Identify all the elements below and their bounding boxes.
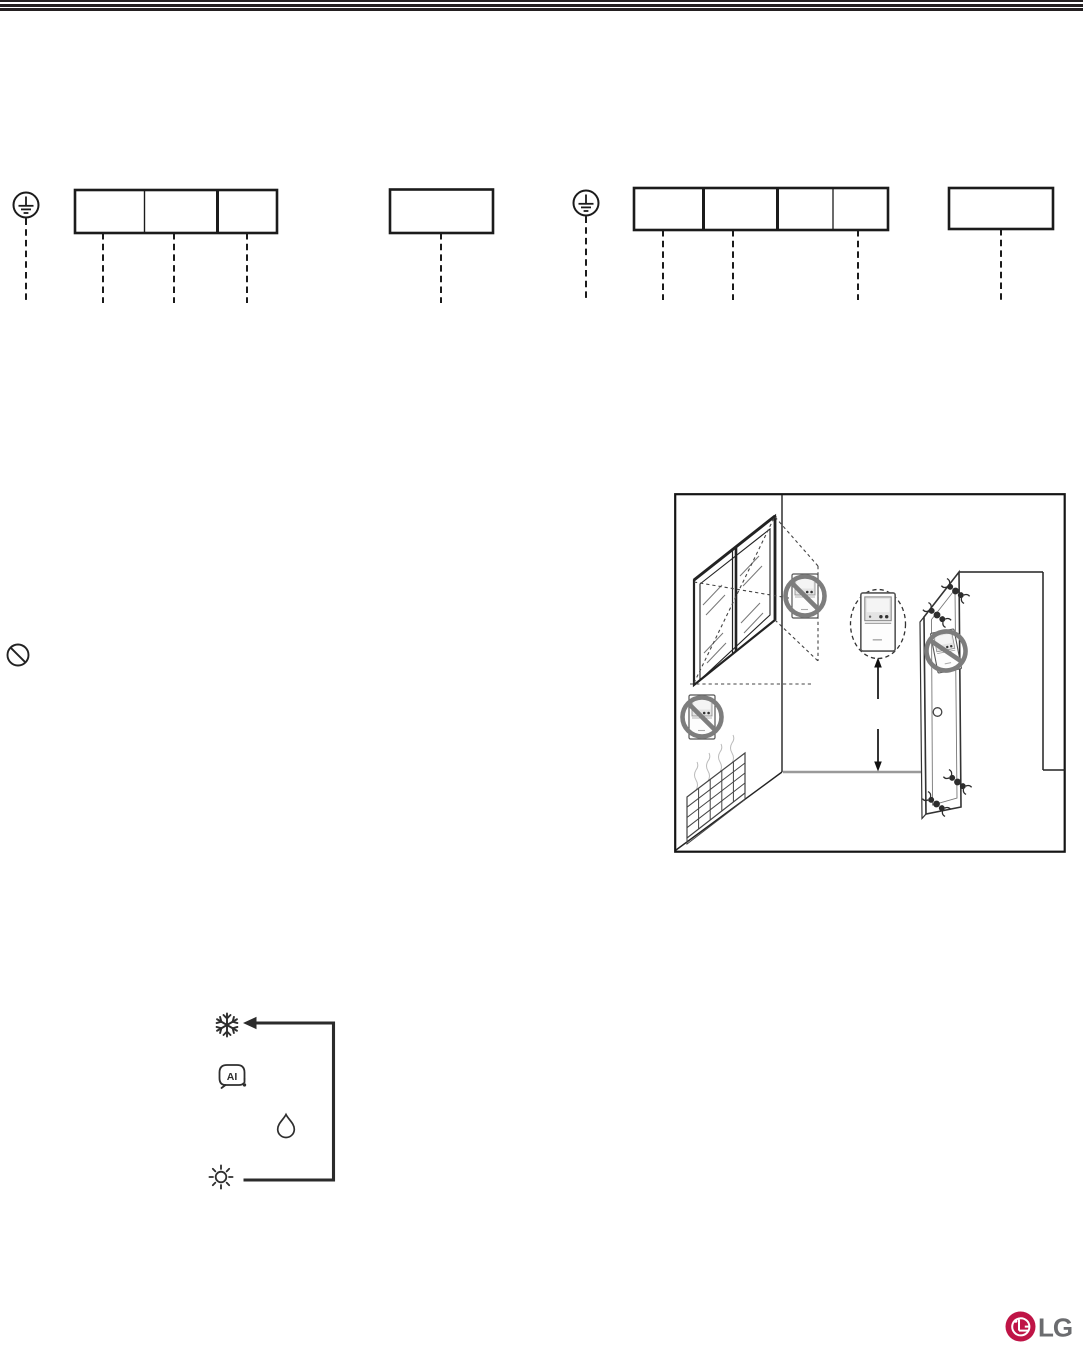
- protective-earth-icon: [14, 193, 39, 218]
- recommended-remote-location: [851, 590, 906, 659]
- operation-mode-cycle-diagram: AI: [205, 1008, 345, 1193]
- terminal-dashed-leads: [103, 233, 247, 303]
- remote-controller: [861, 593, 895, 651]
- cooling-snowflake-icon: [215, 1014, 238, 1037]
- terminal-block-4cell: [634, 188, 888, 230]
- prohibition-circle-slash-icon: [4, 641, 32, 669]
- mode-cycle-arrow: [243, 1017, 334, 1180]
- single-terminal-block: [949, 188, 1053, 229]
- wiring-leads-diagram: [0, 175, 1083, 315]
- heating-sun-icon: [209, 1165, 232, 1188]
- rule-stripe: [0, 8, 1083, 11]
- protective-earth-icon: [574, 191, 599, 216]
- installation-location-illustration: [674, 493, 1066, 853]
- ai-mode-icon: AI: [220, 1065, 247, 1088]
- lg-emblem-icon: [1006, 1312, 1036, 1342]
- door-knob-icon: [933, 708, 942, 717]
- lg-logo-text: LG: [1038, 1313, 1072, 1343]
- ai-mode-label: AI: [227, 1071, 238, 1083]
- lg-logo: LG: [1004, 1309, 1083, 1345]
- terminal-block-3cell: [75, 190, 277, 233]
- page-top-rule: [0, 0, 1083, 11]
- manual-page: AI LG: [0, 0, 1083, 1353]
- dehumidify-drop-icon: [278, 1115, 295, 1138]
- single-terminal-block: [390, 190, 493, 234]
- terminal-dashed-leads: [663, 230, 858, 300]
